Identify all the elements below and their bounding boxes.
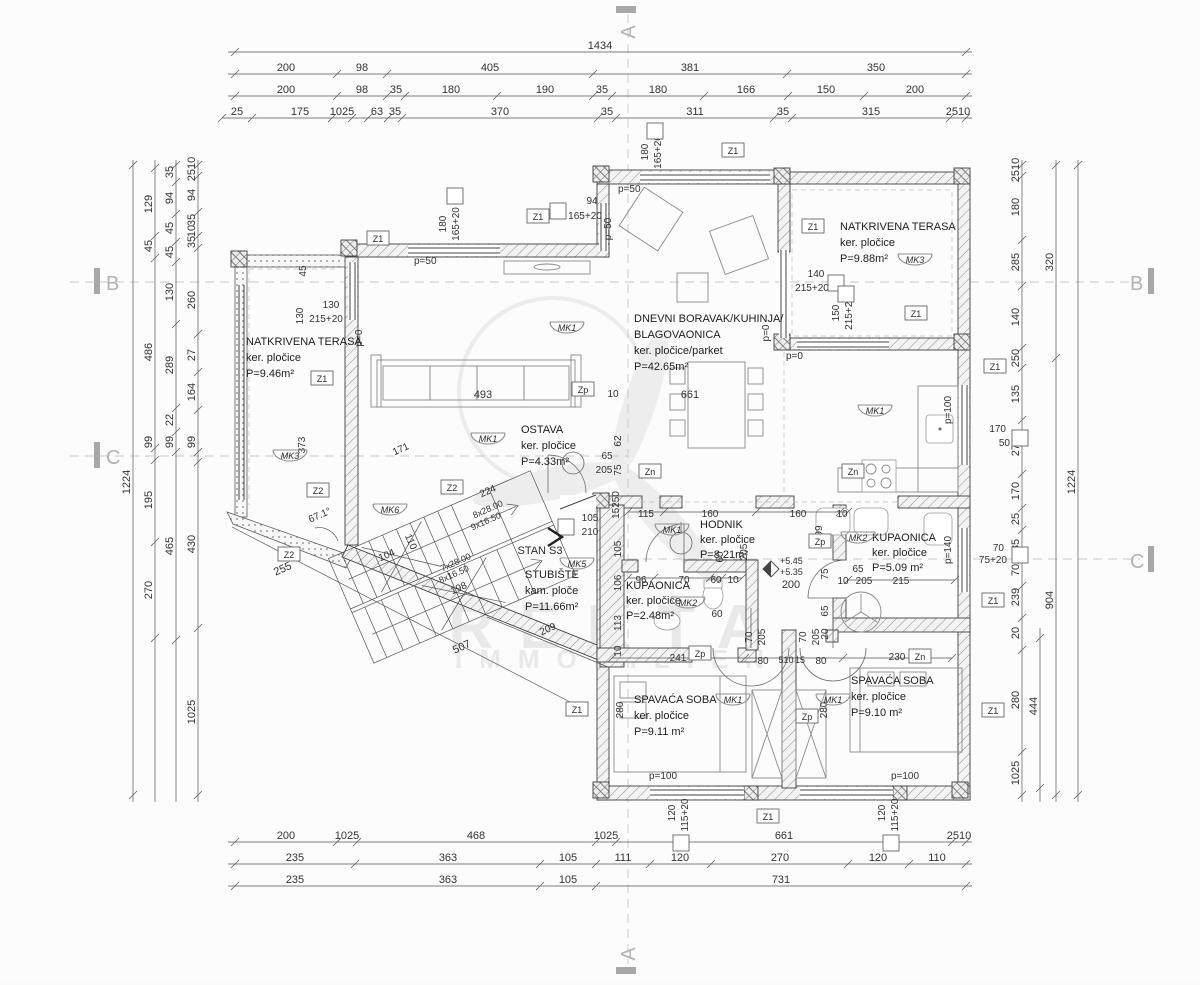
annotation-label: 215+20 xyxy=(795,283,829,294)
annotation-label: 115+20 xyxy=(680,798,691,831)
bed-left xyxy=(614,676,746,772)
annotation-label: 105 xyxy=(582,513,599,524)
dim-label: 370 xyxy=(491,106,509,118)
dim-label: 320 xyxy=(1044,253,1056,271)
dim-label: 27 xyxy=(186,349,198,361)
dim-row: 235363105111120270120110 xyxy=(228,852,972,868)
annotation-label: 70 xyxy=(993,543,1005,554)
dim-label: 105 xyxy=(559,874,577,886)
annotation-label: 130 xyxy=(323,300,340,311)
annotation-label: 210 xyxy=(582,527,599,538)
dim-label: 270 xyxy=(771,852,789,864)
ref-box-label: Zp xyxy=(695,649,706,659)
dim-column: 2510180285140250135270170258570239202801… xyxy=(1010,158,1026,802)
ref-box-z1: Z1 xyxy=(984,359,1006,373)
section-axes: A A B B C C xyxy=(70,6,1154,974)
mk-symbol: MK6 xyxy=(373,504,407,515)
dim-row: 200102546810256612510 xyxy=(228,830,972,846)
ref-box-label: Z1 xyxy=(317,374,328,384)
annotation-label: 106 xyxy=(613,574,624,591)
annotation-label: 130 xyxy=(295,307,306,324)
level-diamond-fill xyxy=(763,561,771,577)
ref-box-label: Zn xyxy=(915,652,926,662)
coffee-table xyxy=(677,273,708,302)
annotation-label: 75 xyxy=(820,568,831,580)
dim-label: 35 xyxy=(390,84,402,96)
annotation-label: 165+20 xyxy=(568,211,602,222)
room-label-line: ker. pločice xyxy=(521,440,576,452)
window-annotation-square xyxy=(447,188,463,204)
window-annotation-square xyxy=(883,835,899,851)
dim-column: 1224 xyxy=(121,160,137,802)
window xyxy=(408,245,500,256)
dim-label: 200 xyxy=(277,84,295,96)
dim-label: 1224 xyxy=(1066,470,1078,494)
mk-label: MK3 xyxy=(281,451,300,461)
mk-label: MK2 xyxy=(849,533,868,543)
room-label-line: P=9.46m² xyxy=(246,368,294,380)
annotation-label: 205 xyxy=(596,465,613,476)
room-label-line: P=2.48m² xyxy=(626,610,674,622)
dim-column: 1224 xyxy=(1066,160,1082,802)
annotation-label: 205 xyxy=(757,628,768,645)
window xyxy=(959,528,969,592)
window xyxy=(959,385,969,465)
armchairs xyxy=(619,187,768,302)
annotation-label: 96 xyxy=(635,575,647,586)
dim-label: 35 xyxy=(164,166,176,178)
dim-label: 94 xyxy=(164,192,176,204)
mk-symbol: MK5 xyxy=(560,558,594,569)
room-label-line: P=9.11 m² xyxy=(634,726,685,738)
floor-plan-svg: REKTA IMMOBILIEN A A B B C C xyxy=(0,0,1200,980)
mk-symbol: MK1 xyxy=(471,433,505,444)
window-annotation-square xyxy=(1012,547,1028,563)
dim-label: 110 xyxy=(928,852,946,864)
room-label-line: ker. pločice xyxy=(851,691,906,703)
room-label-spavaca_r: SPAVAĆA SOBAker. pločiceP=9.10 m² xyxy=(851,674,934,719)
room-label-stubiste: STUBIŠTEkam. pločeP=11.66m² xyxy=(525,568,579,613)
annotation-label: p=140 xyxy=(943,536,954,565)
annotation-label: 60 xyxy=(711,609,723,620)
window xyxy=(797,339,889,349)
ref-box-label: Zp xyxy=(578,385,589,395)
annotation-label: 67.1° xyxy=(307,506,333,526)
annotation-label: 115 xyxy=(638,509,654,520)
dim-label: 200 xyxy=(906,84,924,96)
axis-marker-b-left: B xyxy=(94,268,119,295)
dim-row: 235363105731 xyxy=(228,874,972,890)
dim-label: 468 xyxy=(467,830,485,842)
dim-label: 363 xyxy=(439,852,457,864)
ref-box-z1: Z1 xyxy=(527,209,549,223)
dim-label: 45 xyxy=(143,240,155,252)
ref-box-z2: Z2 xyxy=(307,483,329,497)
dim-label: 250 xyxy=(1010,349,1022,367)
annotation-label: 180 xyxy=(640,143,651,160)
dim-label: 430 xyxy=(186,535,198,553)
annotation-label: p=50 xyxy=(414,256,437,267)
angle-arc xyxy=(315,528,338,541)
axis-marker-b-right: B xyxy=(1130,268,1154,295)
room-label-line: OSTAVA xyxy=(521,424,564,436)
ref-box-label: Z1 xyxy=(911,309,922,319)
annotation-label: 45 xyxy=(298,265,309,277)
room-label-line: ker. pločice xyxy=(246,352,301,364)
ref-box-label: Z2 xyxy=(284,550,295,560)
dim-label: 465 xyxy=(164,537,176,555)
annotation-label: 10 xyxy=(727,575,739,586)
mk-label: MK2 xyxy=(679,598,698,608)
annotation-label: 241 xyxy=(670,653,687,664)
ref-box-label: Z1 xyxy=(990,362,1001,372)
ref-box-label: Z1 xyxy=(373,234,384,244)
annotation-label: 60 xyxy=(710,575,722,586)
axis-letter: A xyxy=(618,25,640,39)
dim-label: 22 xyxy=(164,414,176,426)
dim-label: 2510 xyxy=(946,106,970,118)
annotation-label: 661 xyxy=(681,389,699,401)
dim-label: 904 xyxy=(1044,591,1056,609)
annotation-label: 160 xyxy=(790,509,807,520)
annotation-label: 65 xyxy=(852,564,864,575)
ref-box-z1: Z1 xyxy=(905,306,927,320)
annotation-label: 75 xyxy=(613,464,624,476)
tv-bench xyxy=(504,261,590,274)
room-label-line: kam. ploče xyxy=(525,585,578,597)
ref-box-z1: Z1 xyxy=(982,703,1004,717)
annotation-label: 160 xyxy=(702,509,719,520)
dim-label: 120 xyxy=(671,852,689,864)
room-label-line: SPAVAĆA SOBA xyxy=(634,693,717,706)
annotation-label: 65 xyxy=(601,451,613,462)
dim-label: 63 xyxy=(371,106,383,118)
annotation-label: p=0 xyxy=(786,351,803,362)
room-label-line: P=9.10 m² xyxy=(851,707,902,719)
dim-row: 200983518019035180166150200 xyxy=(228,84,972,100)
annotation-label: 15250 xyxy=(611,491,622,519)
dim-label: 130 xyxy=(164,283,176,301)
room-label-line: HODNIK xyxy=(700,519,743,531)
annotation-label: 165+20 xyxy=(653,135,664,169)
dim-label: 99 xyxy=(186,436,198,448)
annotation-label: 493 xyxy=(474,389,492,401)
annotation-label: 165+20 xyxy=(451,207,462,241)
dim-row: 251751025633537035311353152510 xyxy=(218,106,972,122)
ref-box-z1: Z1 xyxy=(566,702,588,716)
floor-plan-page: REKTA IMMOBILIEN A A B B C C xyxy=(0,0,1200,980)
window-annotation-square xyxy=(558,519,574,535)
annotation-label: 255 xyxy=(272,560,294,578)
dim-label: 20 xyxy=(1010,627,1022,639)
room-label-line: P=9.88m² xyxy=(840,253,888,265)
annotation-label: p=50 xyxy=(618,184,641,195)
annotation-label: 105 xyxy=(613,540,624,557)
dim-label: 98 xyxy=(356,84,368,96)
annotation-label: 75+20 xyxy=(979,555,1008,566)
ref-box-zp: Zp xyxy=(796,709,818,723)
ref-box-z1: Z1 xyxy=(722,143,744,157)
axis-marker-c-left: C xyxy=(94,442,120,469)
annotation-label: 205 xyxy=(811,628,822,645)
ref-box-label: Z1 xyxy=(763,812,774,822)
mk-label: MK3 xyxy=(906,255,925,265)
annotation-label: 70 xyxy=(744,631,755,643)
dim-label: 135 xyxy=(1010,385,1022,403)
annotation-label: +5.45 xyxy=(780,556,803,566)
room-label-line: P=5.09 m² xyxy=(872,562,923,574)
dim-label: 444 xyxy=(1028,697,1040,715)
dim-label: 170 xyxy=(1010,482,1022,500)
dim-label: 35 xyxy=(601,106,613,118)
ref-box-label: Z1 xyxy=(533,212,544,222)
dim-label: 99 xyxy=(164,436,176,448)
window xyxy=(650,787,744,799)
annotation-label: 65 xyxy=(820,605,831,617)
dim-column: 359445451302892299465 xyxy=(164,160,180,802)
room-label-line: STUBIŠTE xyxy=(525,568,579,581)
dim-column: 444 xyxy=(1028,628,1044,802)
dim-label: 111 xyxy=(615,852,632,864)
window-annotation-square xyxy=(647,123,663,139)
mk-label: MK1 xyxy=(558,323,577,333)
dim-label: 285 xyxy=(1010,253,1022,271)
dim-label: 180 xyxy=(442,84,460,96)
ref-box-label: Zp xyxy=(815,537,826,547)
room-label-line: SPAVAĆA SOBA xyxy=(851,674,934,687)
annotation-label: p=50 xyxy=(603,217,614,240)
ref-box-zp: Zp xyxy=(809,534,831,548)
dim-label: 731 xyxy=(772,874,790,886)
room-label-line: KUPAONICA xyxy=(872,532,937,544)
annotation-label: 120 xyxy=(877,804,888,821)
dim-label: 35 xyxy=(777,106,789,118)
dim-label: 486 xyxy=(143,343,155,361)
dim-label: 195 xyxy=(143,491,155,509)
annotation-label: +5.35 xyxy=(780,567,803,577)
axis-marker-c-right: C xyxy=(1130,546,1154,573)
axis-letter: A xyxy=(618,947,640,961)
dim-label: 25 xyxy=(231,106,243,118)
room-label-line: NATKRIVENA TERASA xyxy=(246,336,362,348)
dim-label: 1025 xyxy=(335,830,359,842)
dim-label: 190 xyxy=(536,84,554,96)
stan-s3-label: STAN S3 xyxy=(517,545,562,557)
axis-letter: C xyxy=(1130,551,1144,573)
dim-label: 129 xyxy=(143,195,155,213)
dim-label: 140 xyxy=(1010,308,1022,326)
mk-label: MK1 xyxy=(866,406,885,416)
annotation-label: 60 xyxy=(715,551,726,563)
dim-label: 405 xyxy=(481,62,499,74)
annotation-label: 70 xyxy=(678,575,690,586)
annotation-label: 280 xyxy=(615,701,626,718)
mk-symbol: MK3 xyxy=(898,254,932,265)
dim-label: 661 xyxy=(775,830,793,842)
mk-symbol: MK1 xyxy=(716,694,750,705)
dim-label: 1434 xyxy=(588,40,612,52)
annotation-label: 110 xyxy=(402,532,419,551)
dim-column: 320904 xyxy=(1044,160,1060,802)
room-label-line: ker. pločice/parket xyxy=(634,345,723,357)
dim-label: 164 xyxy=(186,383,198,401)
dim-label: 235 xyxy=(286,852,304,864)
dim-label: 270 xyxy=(143,581,155,599)
annotation-label: 200 xyxy=(782,579,800,591)
entry-door-opening xyxy=(560,495,596,509)
dim-column: 25109435103526027164994301025 xyxy=(186,157,202,802)
dim-label: 175 xyxy=(291,106,309,118)
dim-label: 35 xyxy=(186,214,198,226)
dim-label: 350 xyxy=(867,62,885,74)
ref-box-zp: Zp xyxy=(572,382,594,396)
ref-box-zp: Zp xyxy=(689,646,711,660)
mk-label: MK1 xyxy=(824,695,843,705)
room-label-line: ker. pločice xyxy=(840,237,895,249)
ref-box-z1: Z1 xyxy=(757,809,779,823)
dim-label: 381 xyxy=(681,62,699,74)
annotation-label: 80 xyxy=(757,656,769,667)
dim-label: 166 xyxy=(737,84,755,96)
window-annotation-square xyxy=(1012,430,1028,446)
dim-label: 311 xyxy=(686,106,704,118)
ref-box-z1: Z1 xyxy=(982,593,1004,607)
ref-box-z1: Z1 xyxy=(311,371,333,385)
dim-label: 235 xyxy=(286,874,304,886)
dim-label: 260 xyxy=(186,291,198,309)
axis-letter: B xyxy=(1130,273,1143,295)
dim-label: 2510 xyxy=(947,830,971,842)
room-label-line: P=11.66m² xyxy=(525,601,579,613)
ref-box-z1: Z1 xyxy=(367,231,389,245)
dim-label: 239 xyxy=(1010,588,1022,606)
window xyxy=(348,262,357,320)
dim-label: 315 xyxy=(862,106,880,118)
ref-box-zn: Zn xyxy=(842,464,864,478)
washbasin xyxy=(854,508,888,535)
dim-label: 120 xyxy=(869,852,887,864)
annotation-label: 215 xyxy=(893,576,910,587)
dim-label: 35 xyxy=(596,84,608,96)
dim-label: 150 xyxy=(817,84,835,96)
annotation-label: 10 xyxy=(607,389,619,400)
ref-box-label: Zn xyxy=(848,467,859,477)
annotation-label: p=0 xyxy=(761,324,772,341)
annotation-label: 80 xyxy=(815,656,827,667)
dim-row: 1434 xyxy=(228,40,972,56)
annotation-label: p=0 xyxy=(354,329,365,346)
dim-label: 99 xyxy=(143,436,155,448)
room-label-line: BLAGOVAONICA xyxy=(634,329,721,341)
dim-label: 70 xyxy=(1010,564,1022,576)
room-label-spavaca_l: SPAVAĆA SOBAker. pločiceP=9.11 m² xyxy=(634,693,717,738)
annotation-label: 215+20 xyxy=(309,314,343,325)
dim-label: 1025 xyxy=(1010,761,1022,785)
ref-box-z1: Z1 xyxy=(802,219,824,233)
ref-box-label: Zn xyxy=(645,467,656,477)
ref-box-zn: Zn xyxy=(909,649,931,663)
window-annotation-square xyxy=(673,835,689,851)
ref-box-zn: Zn xyxy=(639,464,661,478)
dim-label: 94 xyxy=(186,189,198,201)
room-label-line: DNEVNI BORAVAK/KUHINJA/ xyxy=(634,313,784,325)
mk-label: MK1 xyxy=(724,695,743,705)
room-label-line: ker. pločice xyxy=(634,710,689,722)
room-label-line: P=42.65m² xyxy=(634,361,688,373)
annotation-label: 205 xyxy=(856,576,873,587)
ref-box-label: Z1 xyxy=(728,146,739,156)
annotation-label: 230 xyxy=(889,652,906,663)
annotation-label: 10 xyxy=(837,576,849,587)
dim-label: 25 xyxy=(1010,513,1022,525)
mk-label: MK6 xyxy=(381,505,400,515)
dim-label: 363 xyxy=(439,874,457,886)
dim-label: 45 xyxy=(164,246,176,258)
axis-letter: B xyxy=(106,273,119,295)
ref-box-label: Z2 xyxy=(447,483,458,493)
level-marker-icon xyxy=(763,561,779,577)
ref-box-z2: Z2 xyxy=(441,480,463,494)
axis-letter: C xyxy=(106,447,120,469)
annotation-label: 120 xyxy=(667,804,678,821)
dining-set xyxy=(670,362,763,448)
mk-symbol: MK1 xyxy=(550,322,584,333)
mk-label: MK5 xyxy=(568,559,588,569)
window-annotation-square xyxy=(550,203,566,219)
room-label-line: NATKRIVENA TERASA xyxy=(840,221,956,233)
dim-label: 180 xyxy=(1010,198,1022,216)
dim-row: 20098405381350 xyxy=(228,62,972,78)
dim-label: 289 xyxy=(164,356,176,374)
annotation-label: 115+20 xyxy=(890,798,901,831)
dim-label: 45 xyxy=(164,222,176,234)
ref-box-z2: Z2 xyxy=(278,547,300,561)
room-label-line: P=4.33m² xyxy=(521,456,569,468)
window xyxy=(800,787,893,799)
axis-marker-a-bottom: A xyxy=(616,947,640,974)
dim-label: 2510 xyxy=(1010,158,1022,182)
annotation-label: 170 xyxy=(989,424,1006,435)
ref-box-label: Z1 xyxy=(808,222,819,232)
ref-box-label: Zp xyxy=(802,712,813,722)
dim-label: 280 xyxy=(1010,691,1022,709)
window xyxy=(640,172,770,183)
dim-label: 200 xyxy=(277,62,295,74)
annotation-label: 10 xyxy=(836,509,848,520)
stan-s3-pointer: STAN S3 xyxy=(517,528,562,557)
dim-label: 200 xyxy=(277,830,295,842)
room-label-kupaonica_v: KUPAONICAker. pločiceP=5.09 m² xyxy=(872,532,937,574)
mk-symbol: MK1 xyxy=(858,405,892,416)
ref-box-label: Z1 xyxy=(988,596,999,606)
dim-label: 1224 xyxy=(121,470,133,494)
annotation-label: 70 xyxy=(798,631,809,643)
window-annotation-square xyxy=(838,286,854,302)
cooktop-icon xyxy=(862,460,896,492)
annotation-label: 10 xyxy=(613,645,624,657)
annotation-label: 94 xyxy=(586,196,598,207)
annotation-label: 150 xyxy=(831,304,842,321)
annotation-label: 50 xyxy=(999,438,1011,449)
annotation-label: 113 xyxy=(613,615,624,631)
dim-label: 98 xyxy=(356,62,368,74)
dim-column: 1294548699195270 xyxy=(143,160,159,802)
dim-label: 35 xyxy=(389,106,401,118)
ref-box-label: Z1 xyxy=(988,706,999,716)
dim-label: 180 xyxy=(649,84,667,96)
mk-label: MK1 xyxy=(663,525,682,535)
ref-box-label: Z1 xyxy=(572,705,583,715)
